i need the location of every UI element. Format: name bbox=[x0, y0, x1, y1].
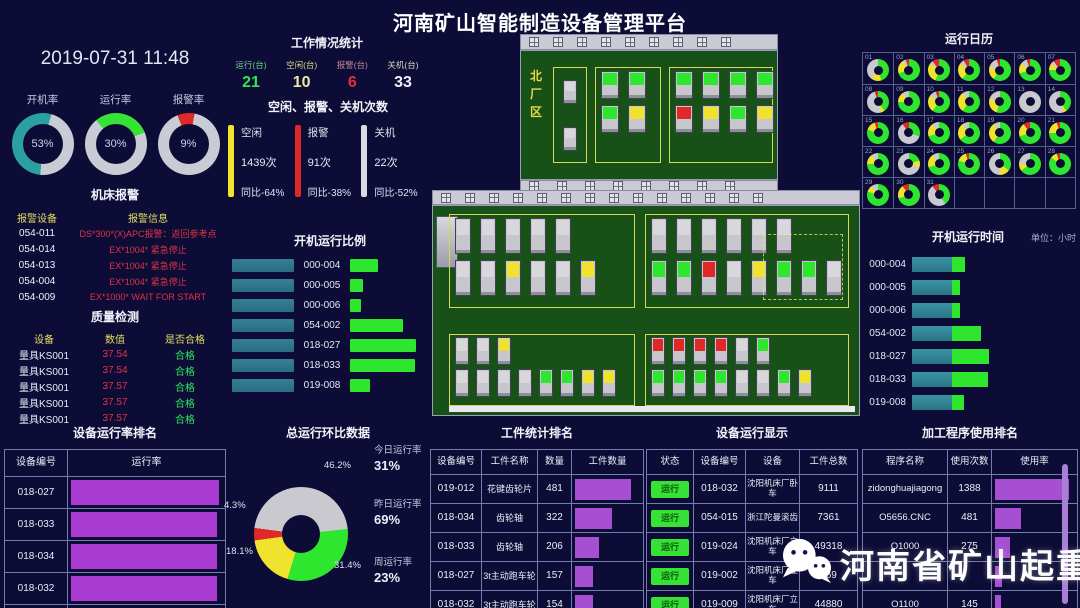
machine-status bbox=[653, 220, 665, 235]
machine-gray[interactable] bbox=[651, 218, 667, 254]
workpiece-row[interactable]: 018-034齿轮轴322 bbox=[431, 503, 643, 532]
calendar-day-13[interactable]: 13 bbox=[1014, 84, 1044, 115]
work-stat-value: 21 bbox=[228, 74, 274, 92]
quality-device: 量具KS001 bbox=[4, 395, 84, 410]
watermark-text: 河南省矿山起重机 bbox=[840, 539, 1080, 588]
calendar-day-15[interactable]: 15 bbox=[863, 115, 893, 146]
machine-status bbox=[507, 220, 519, 235]
count-value: 91次 bbox=[308, 154, 351, 170]
rate-bar-cell bbox=[67, 509, 225, 540]
machine-gray[interactable] bbox=[480, 218, 496, 254]
machine-gray[interactable] bbox=[455, 337, 469, 365]
machine-red[interactable] bbox=[714, 337, 728, 365]
startup-label: 018-033 bbox=[294, 360, 350, 371]
machine-green[interactable] bbox=[777, 369, 791, 397]
startup-ratio-title: 开机运行比例 bbox=[232, 232, 428, 249]
machine-yellow[interactable] bbox=[702, 105, 720, 133]
workpiece-title: 工件统计排名 bbox=[430, 424, 644, 441]
machine-gray[interactable] bbox=[563, 80, 577, 104]
machine-gray[interactable] bbox=[530, 260, 546, 296]
workpiece-row[interactable]: 018-0323t主动跑车轮154 bbox=[431, 590, 643, 608]
machine-yellow[interactable] bbox=[505, 260, 521, 296]
calendar-donut-hole bbox=[1026, 66, 1035, 75]
week-rate: 周运行率 23% bbox=[374, 554, 430, 585]
calendar-day-20[interactable]: 20 bbox=[1014, 115, 1044, 146]
gauge-label: 开机率 bbox=[6, 92, 79, 107]
runtime-run-bar bbox=[952, 349, 989, 364]
alarm-header-row: 报警设备报警信息 bbox=[4, 209, 226, 225]
runtime-on-bar bbox=[912, 280, 952, 295]
count-texts: 报警91次同比-38% bbox=[308, 125, 351, 199]
calendar-donut-hole bbox=[904, 128, 913, 137]
runtime-chart: 000-004000-005000-006054-002018-027018-0… bbox=[858, 253, 1078, 414]
machine-status bbox=[532, 220, 544, 235]
calendar-day-09[interactable]: 09 bbox=[893, 84, 923, 115]
machine-gray[interactable] bbox=[555, 260, 571, 296]
quality-row[interactable]: 量具KS00137.57合格 bbox=[4, 394, 226, 410]
work-stat-10: 空闲(台)10 bbox=[279, 59, 325, 92]
total-ring-panel: 总运行环比数据 46.2% 4.3% 18.1% 31.4% 今日运行率 31%… bbox=[228, 424, 428, 608]
machine-status bbox=[704, 107, 718, 119]
machine-alarm-table: 报警设备报警信息054-011DS*300*(X)APC报警：返回参考点054-… bbox=[4, 209, 226, 305]
alarm-header-device: 报警设备 bbox=[4, 210, 70, 225]
rate-row[interactable]: 018-034 bbox=[5, 540, 225, 572]
alarm-info: EX*1004* 紧急停止 bbox=[70, 243, 226, 256]
machine-row bbox=[670, 68, 772, 102]
quality-device: 量具KS001 bbox=[4, 379, 84, 394]
machine-status bbox=[507, 262, 519, 277]
machine-green[interactable] bbox=[539, 369, 553, 397]
machine-green[interactable] bbox=[729, 71, 747, 99]
today-rate: 今日运行率 31% bbox=[374, 442, 430, 473]
machine-green[interactable] bbox=[756, 337, 770, 365]
calendar-day-donut bbox=[1019, 153, 1041, 175]
machine-yellow[interactable] bbox=[581, 369, 595, 397]
workpiece-bar-cell bbox=[571, 504, 643, 532]
window-icon bbox=[529, 37, 539, 47]
machine-green[interactable] bbox=[714, 369, 728, 397]
calendar-day-24[interactable]: 24 bbox=[924, 146, 954, 177]
machine-red[interactable] bbox=[693, 337, 707, 365]
workpiece-name: 3t主动跑车轮 bbox=[481, 591, 537, 608]
machine-green[interactable] bbox=[729, 105, 747, 133]
machine-status bbox=[704, 73, 718, 85]
runtime-panel: 开机运行时间 单位：小时 000-004000-005000-006054-00… bbox=[858, 228, 1078, 414]
calendar-day-02[interactable]: 02 bbox=[893, 53, 923, 84]
workpiece-header-row: 设备编号工件名称数量工件数量 bbox=[431, 450, 643, 474]
count-bar bbox=[228, 125, 234, 197]
alarm-row[interactable]: 054-004EX*1004* 紧急停止 bbox=[4, 273, 226, 289]
ring-hole bbox=[282, 515, 320, 553]
count-value: 1439次 bbox=[241, 154, 284, 170]
quality-header: 设备 bbox=[4, 331, 84, 346]
count-bar bbox=[361, 125, 367, 197]
calendar-day-21[interactable]: 21 bbox=[1045, 115, 1075, 146]
machine-status bbox=[695, 339, 705, 351]
gauge-value: 53% bbox=[23, 124, 63, 164]
calendar-day-donut bbox=[1049, 91, 1071, 113]
calendar-donut-hole bbox=[995, 97, 1004, 106]
alarm-device: 054-011 bbox=[4, 228, 70, 239]
north-workshop-map: 北厂区 bbox=[520, 34, 778, 192]
calendar-day-12[interactable]: 12 bbox=[984, 84, 1014, 115]
calendar-day-14[interactable]: 14 bbox=[1045, 84, 1075, 115]
machine-status bbox=[677, 73, 691, 85]
calendar-day-03[interactable]: 03 bbox=[924, 53, 954, 84]
calendar-day-donut bbox=[989, 122, 1011, 144]
machine-status bbox=[457, 371, 467, 383]
machine-gray[interactable] bbox=[756, 369, 770, 397]
count-label: 关机 bbox=[374, 125, 417, 140]
machine-green[interactable] bbox=[651, 260, 667, 296]
machine-red[interactable] bbox=[672, 337, 686, 365]
device-row[interactable]: 运行019-009沈阳机床厂立车44880 bbox=[647, 590, 857, 608]
rate-row[interactable]: 018-027 bbox=[5, 476, 225, 508]
machine-gray[interactable] bbox=[455, 218, 471, 254]
machine-green[interactable] bbox=[560, 369, 574, 397]
calendar-day-donut bbox=[1049, 122, 1071, 144]
startup-run-bar bbox=[350, 339, 416, 352]
calendar-day-26[interactable]: 26 bbox=[984, 146, 1014, 177]
quality-value: 37.54 bbox=[84, 349, 146, 360]
workpiece-row[interactable]: 018-033齿轮轴206 bbox=[431, 532, 643, 561]
calendar-donut-hole bbox=[965, 159, 974, 168]
program-row[interactable]: zidonghuajiagong1388 bbox=[863, 474, 1077, 503]
calendar-day-06[interactable]: 06 bbox=[1014, 53, 1044, 84]
run-status-button[interactable]: 运行 bbox=[651, 597, 689, 608]
machine-gray[interactable] bbox=[455, 369, 469, 397]
work-stat-21: 运行(台)21 bbox=[228, 59, 274, 92]
machine-gray[interactable] bbox=[555, 218, 571, 254]
calendar-day-29[interactable]: 29 bbox=[863, 177, 893, 208]
machine-gray[interactable] bbox=[735, 337, 749, 365]
startup-on-bar bbox=[232, 359, 294, 372]
machine-status bbox=[678, 220, 690, 235]
machine-gray[interactable] bbox=[701, 218, 717, 254]
machine-row bbox=[450, 215, 634, 257]
zone-top-left bbox=[449, 214, 635, 308]
device-status-cell: 运行 bbox=[647, 504, 693, 532]
machine-yellow[interactable] bbox=[602, 369, 616, 397]
run-status-button[interactable]: 运行 bbox=[651, 568, 689, 585]
program-row[interactable]: O1100145 bbox=[863, 590, 1077, 608]
machine-status bbox=[603, 107, 617, 119]
alarm-row[interactable]: 054-011DS*300*(X)APC报警：返回参考点 bbox=[4, 225, 226, 241]
program-bar bbox=[995, 479, 1069, 500]
program-count: 481 bbox=[947, 504, 991, 532]
alarm-header-info: 报警信息 bbox=[70, 210, 226, 225]
workpiece-header: 工件名称 bbox=[481, 450, 537, 474]
machine-green[interactable] bbox=[601, 105, 619, 133]
startup-label: 000-005 bbox=[294, 280, 350, 291]
calendar-day-22[interactable]: 22 bbox=[863, 146, 893, 177]
count-blocks: 空闲1439次同比-64%报警91次同比-38%关机22次同比-52% bbox=[228, 125, 428, 199]
count-value: 22次 bbox=[374, 154, 417, 170]
device-row[interactable]: 运行018-032沈阳机床厂卧车9111 bbox=[647, 474, 857, 503]
calendar-day-donut bbox=[898, 122, 920, 144]
startup-run-bar bbox=[350, 379, 370, 392]
gauge-value: 30% bbox=[96, 124, 136, 164]
workpiece-row[interactable]: 019-012花键齿轮片481 bbox=[431, 474, 643, 503]
machine-yellow[interactable] bbox=[497, 337, 511, 365]
machine-gray[interactable] bbox=[476, 369, 490, 397]
ring-callout-gray: 46.2% bbox=[324, 460, 351, 471]
runtime-run-bar bbox=[952, 303, 960, 318]
gauge-运行率: 运行率30% bbox=[79, 92, 152, 175]
alarm-row[interactable]: 054-009EX*1000* WAIT FOR START bbox=[4, 289, 226, 305]
machine-status bbox=[728, 262, 740, 277]
device-row[interactable]: 运行054-015浙江陀曼滚齿7361 bbox=[647, 503, 857, 532]
machine-status bbox=[583, 371, 593, 383]
count-block-空闲: 空闲1439次同比-64% bbox=[228, 125, 295, 199]
calendar-donut-hole bbox=[935, 128, 944, 137]
runtime-row-018-027: 018-027 bbox=[858, 345, 1078, 368]
rate-row[interactable]: 018-032 bbox=[5, 572, 225, 604]
north-floor: 北厂区 bbox=[520, 50, 778, 180]
calendar-donut-hole bbox=[874, 190, 883, 199]
window-icon bbox=[609, 193, 619, 203]
calendar-donut-hole bbox=[995, 128, 1004, 137]
quality-row[interactable]: 量具KS00137.54合格 bbox=[4, 362, 226, 378]
count-texts: 空闲1439次同比-64% bbox=[241, 125, 284, 199]
quality-row[interactable]: 量具KS00137.57合格 bbox=[4, 378, 226, 394]
rate-bar bbox=[71, 512, 217, 537]
quality-panel: 质量检测 设备数值是否合格量具KS00137.54合格量具KS00137.54合… bbox=[4, 308, 226, 426]
calendar-donut-hole bbox=[1026, 97, 1035, 106]
rate-bar-cell bbox=[67, 541, 225, 572]
machine-row bbox=[670, 102, 772, 136]
machine-status bbox=[653, 339, 663, 351]
calendar-donut-hole bbox=[965, 66, 974, 75]
machine-status bbox=[562, 371, 572, 383]
machine-green[interactable] bbox=[676, 260, 692, 296]
machine-green[interactable] bbox=[702, 71, 720, 99]
machine-gray[interactable] bbox=[480, 260, 496, 296]
workpiece-id: 018-033 bbox=[431, 533, 481, 561]
calendar-empty-cell bbox=[984, 177, 1014, 208]
machine-yellow[interactable] bbox=[628, 105, 646, 133]
window-icon bbox=[753, 193, 763, 203]
rate-row[interactable]: 013-030 bbox=[5, 604, 225, 608]
machine-yellow[interactable] bbox=[756, 105, 774, 133]
rate-row[interactable]: 018-033 bbox=[5, 508, 225, 540]
device-name: 沈阳机床厂立车 bbox=[745, 591, 799, 608]
machine-gray[interactable] bbox=[676, 218, 692, 254]
machine-gray[interactable] bbox=[726, 218, 742, 254]
startup-run-bar bbox=[350, 299, 361, 312]
machine-status bbox=[557, 262, 569, 277]
machine-status bbox=[457, 339, 467, 351]
workpiece-id: 019-012 bbox=[431, 475, 481, 503]
calendar-day-donut bbox=[989, 153, 1011, 175]
workpiece-bar bbox=[575, 479, 631, 500]
program-bar bbox=[995, 508, 1021, 529]
calendar-day-23[interactable]: 23 bbox=[893, 146, 923, 177]
calendar-donut-hole bbox=[904, 159, 913, 168]
alarm-row[interactable]: 054-013EX*1004* 紧急停止 bbox=[4, 257, 226, 273]
alarm-info: EX*1004* 紧急停止 bbox=[70, 275, 226, 288]
workpiece-bar bbox=[575, 566, 593, 587]
machine-status bbox=[731, 73, 745, 85]
calendar-day-28[interactable]: 28 bbox=[1045, 146, 1075, 177]
calendar-day-01[interactable]: 01 bbox=[863, 53, 893, 84]
workpiece-row[interactable]: 018-0273t主动跑车轮157 bbox=[431, 561, 643, 590]
calendar-day-donut bbox=[1049, 59, 1071, 81]
run-status-button[interactable]: 运行 bbox=[651, 539, 689, 556]
machine-status bbox=[778, 220, 790, 235]
machine-gray[interactable] bbox=[726, 260, 742, 296]
calendar-day-16[interactable]: 16 bbox=[893, 115, 923, 146]
startup-row-019-008: 019-008 bbox=[232, 375, 428, 395]
calendar-empty-cell bbox=[1045, 177, 1075, 208]
machine-green[interactable] bbox=[756, 71, 774, 99]
runtime-label: 000-006 bbox=[858, 305, 906, 316]
machine-status bbox=[520, 371, 530, 383]
machine-red[interactable] bbox=[701, 260, 717, 296]
workpiece-count: 157 bbox=[537, 562, 571, 590]
machine-status bbox=[677, 107, 691, 119]
calendar-day-31[interactable]: 31 bbox=[924, 177, 954, 208]
machine-green[interactable] bbox=[693, 369, 707, 397]
window-icon bbox=[673, 37, 683, 47]
workpiece-name: 齿轮轴 bbox=[481, 533, 537, 561]
work-stat-label: 空闲(台) bbox=[279, 59, 325, 71]
runtime-label: 054-002 bbox=[858, 328, 906, 339]
machine-gray[interactable] bbox=[455, 260, 471, 296]
runtime-run-bar bbox=[952, 395, 964, 410]
machine-status bbox=[703, 220, 715, 235]
machine-gray[interactable] bbox=[735, 369, 749, 397]
calendar-donut-hole bbox=[935, 66, 944, 75]
machine-status bbox=[758, 339, 768, 351]
north-wall-windows bbox=[520, 34, 778, 50]
window-icon bbox=[489, 193, 499, 203]
calendar-day-19[interactable]: 19 bbox=[984, 115, 1014, 146]
machine-status bbox=[653, 371, 663, 383]
calendar-day-11[interactable]: 11 bbox=[954, 84, 984, 115]
machine-status bbox=[457, 262, 469, 277]
machine-red[interactable] bbox=[675, 105, 693, 133]
machine-row bbox=[450, 367, 634, 399]
machine-status bbox=[703, 262, 715, 277]
calendar-donut-hole bbox=[1026, 159, 1035, 168]
quality-row[interactable]: 量具KS00137.54合格 bbox=[4, 346, 226, 362]
quality-value: 37.54 bbox=[84, 365, 146, 376]
calendar-grid: 0102030405060708091011121314151617181920… bbox=[862, 52, 1076, 209]
device-name: 沈阳机床厂卧车 bbox=[745, 475, 799, 503]
program-name: zidonghuajiagong bbox=[863, 475, 947, 503]
calendar-day-08[interactable]: 08 bbox=[863, 84, 893, 115]
device-id: 019-024 bbox=[693, 533, 745, 561]
machine-gray[interactable] bbox=[476, 337, 490, 365]
device-display-title: 设备运行显示 bbox=[646, 424, 858, 441]
quality-header: 数值 bbox=[84, 331, 146, 346]
work-stat-33: 关机(台)33 bbox=[380, 59, 426, 92]
work-stats-panel: 工作情况统计 运行(台)21空闲(台)10报警(台)6关机(台)33 bbox=[228, 34, 426, 92]
calendar-day-05[interactable]: 05 bbox=[984, 53, 1014, 84]
calendar-day-10[interactable]: 10 bbox=[924, 84, 954, 115]
device-name: 浙江陀曼滚齿 bbox=[745, 504, 799, 532]
startup-row-018-027: 018-027 bbox=[232, 335, 428, 355]
rate-id: 018-032 bbox=[5, 573, 67, 604]
machine-row bbox=[596, 102, 660, 136]
machine-gray[interactable] bbox=[530, 218, 546, 254]
runtime-on-bar bbox=[912, 326, 952, 341]
machine-row bbox=[646, 367, 848, 399]
machine-yellow[interactable] bbox=[798, 369, 812, 397]
device-status-cell: 运行 bbox=[647, 562, 693, 590]
workpiece-count: 481 bbox=[537, 475, 571, 503]
workpiece-table: 设备编号工件名称数量工件数量019-012花键齿轮片481018-034齿轮轴3… bbox=[430, 449, 644, 608]
machine-gray[interactable] bbox=[563, 127, 577, 151]
calendar-day-donut bbox=[1019, 91, 1041, 113]
machine-status bbox=[716, 339, 726, 351]
calendar-donut-hole bbox=[935, 159, 944, 168]
machine-green[interactable] bbox=[675, 71, 693, 99]
calendar-day-27[interactable]: 27 bbox=[1014, 146, 1044, 177]
work-stat-label: 关机(台) bbox=[380, 59, 426, 71]
machine-red[interactable] bbox=[651, 337, 665, 365]
machine-gray[interactable] bbox=[505, 218, 521, 254]
dashboard: 河南矿山智能制造设备管理平台 2019-07-31 11:48 开机率53%运行… bbox=[0, 0, 1080, 608]
runtime-run-bar bbox=[952, 326, 981, 341]
program-name: O5656.CNC bbox=[863, 504, 947, 532]
program-row[interactable]: O5656.CNC481 bbox=[863, 503, 1077, 532]
runtime-on-bar bbox=[912, 349, 952, 364]
device-id: 019-002 bbox=[693, 562, 745, 590]
machine-gray[interactable] bbox=[518, 369, 532, 397]
device-header: 设备编号 bbox=[693, 450, 745, 474]
device-status-cell: 运行 bbox=[647, 533, 693, 561]
main-workshop-map bbox=[432, 190, 860, 416]
calendar-day-17[interactable]: 17 bbox=[924, 115, 954, 146]
calendar-day-donut bbox=[958, 122, 980, 144]
machine-status bbox=[630, 73, 644, 85]
machine-status bbox=[737, 339, 747, 351]
runtime-row-054-002: 054-002 bbox=[858, 322, 1078, 345]
run-status-button[interactable]: 运行 bbox=[651, 510, 689, 527]
work-stat-6: 报警(台)6 bbox=[329, 59, 375, 92]
machine-status bbox=[457, 220, 469, 235]
machine-green[interactable] bbox=[672, 369, 686, 397]
calendar-day-18[interactable]: 18 bbox=[954, 115, 984, 146]
calendar-day-donut bbox=[867, 122, 889, 144]
runtime-unit: 单位：小时 bbox=[1031, 231, 1076, 244]
device-header-row: 状态设备编号设备工件总数 bbox=[647, 450, 857, 474]
machine-gray[interactable] bbox=[497, 369, 511, 397]
alarm-row[interactable]: 054-014EX*1004* 紧急停止 bbox=[4, 241, 226, 257]
calendar-day-07[interactable]: 07 bbox=[1045, 53, 1075, 84]
workpiece-bar bbox=[575, 537, 599, 558]
calendar-donut-hole bbox=[935, 190, 944, 199]
runtime-row-000-006: 000-006 bbox=[858, 299, 1078, 322]
calendar-day-25[interactable]: 25 bbox=[954, 146, 984, 177]
machine-green[interactable] bbox=[628, 71, 646, 99]
quality-value: 37.57 bbox=[84, 381, 146, 392]
runtime-label: 019-008 bbox=[858, 397, 906, 408]
machine-green[interactable] bbox=[601, 71, 619, 99]
machine-yellow[interactable] bbox=[580, 260, 596, 296]
run-status-button[interactable]: 运行 bbox=[651, 481, 689, 498]
program-header: 使用次数 bbox=[947, 450, 991, 474]
startup-row-054-002: 054-002 bbox=[232, 315, 428, 335]
count-label: 报警 bbox=[308, 125, 351, 140]
device-header: 设备 bbox=[745, 450, 799, 474]
calendar-day-04[interactable]: 04 bbox=[954, 53, 984, 84]
calendar-day-30[interactable]: 30 bbox=[893, 177, 923, 208]
machine-status bbox=[499, 339, 509, 351]
machine-green[interactable] bbox=[651, 369, 665, 397]
